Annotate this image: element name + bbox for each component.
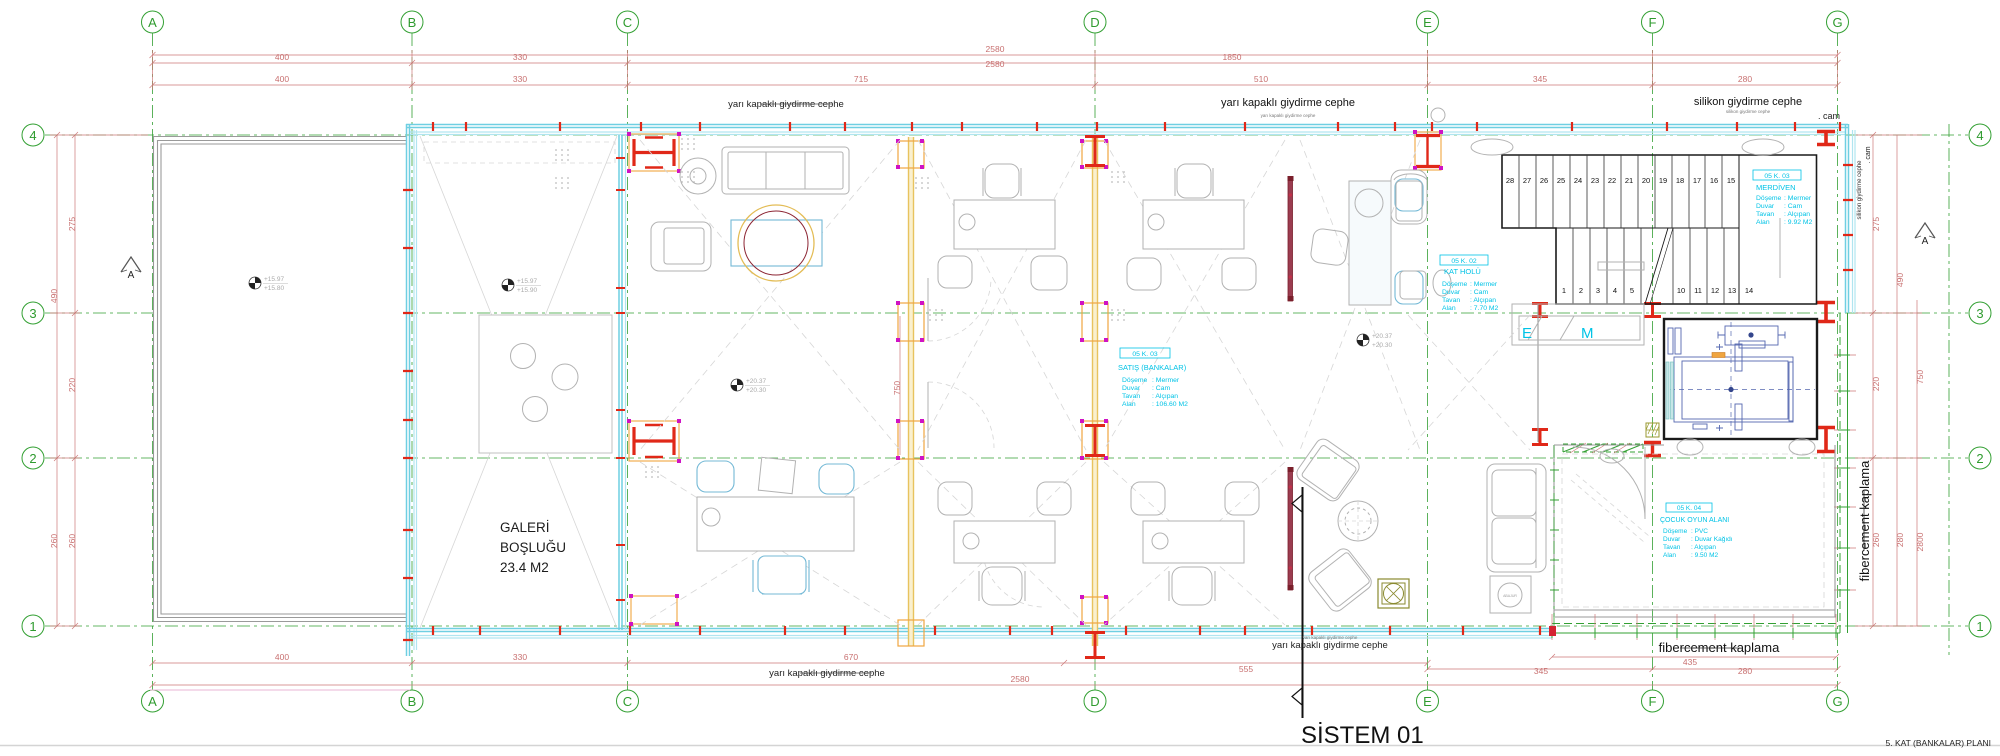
svg-text:A: A [1922, 236, 1929, 247]
svg-text:490: 490 [1895, 273, 1905, 287]
svg-text:: 106.60 M2: : 106.60 M2 [1152, 401, 1188, 408]
svg-text:SATIŞ (BANKALAR): SATIŞ (BANKALAR) [1118, 363, 1187, 372]
svg-text:Duvar: Duvar [1756, 203, 1775, 210]
svg-text:18: 18 [1676, 176, 1684, 185]
svg-text:E: E [1522, 325, 1532, 342]
svg-text:220: 220 [1871, 377, 1881, 391]
svg-text:220: 220 [67, 378, 77, 392]
svg-text:24: 24 [1574, 176, 1582, 185]
svg-text:05 K. 03: 05 K. 03 [1764, 173, 1790, 180]
svg-text:: Duvar Kağıdı: : Duvar Kağıdı [1691, 536, 1733, 543]
svg-text:12: 12 [1711, 286, 1719, 295]
svg-text:: Alçıpan: : Alçıpan [1152, 393, 1178, 400]
svg-text:23: 23 [1591, 176, 1599, 185]
svg-text:: Mermer: : Mermer [1784, 195, 1812, 202]
svg-text:555: 555 [1239, 664, 1253, 674]
svg-text:: Alçıpan: : Alçıpan [1784, 211, 1810, 218]
svg-text:fibercement kaplama: fibercement kaplama [1659, 640, 1780, 655]
svg-text:400: 400 [275, 652, 289, 662]
svg-text:E: E [1423, 694, 1432, 709]
svg-text:fibercement kaplama: fibercement kaplama [1857, 460, 1872, 581]
svg-text:Döşeme: Döşeme [1663, 528, 1688, 535]
svg-text:: Cam: : Cam [1152, 385, 1170, 392]
svg-text:Döşeme: Döşeme [1122, 377, 1148, 384]
svg-text:16: 16 [1710, 176, 1718, 185]
svg-text:490: 490 [49, 289, 59, 303]
svg-text:yarı kapaklı giydirme cephe: yarı kapaklı giydirme cephe [1261, 113, 1316, 118]
svg-text:1: 1 [29, 619, 36, 634]
svg-text:Döşeme: Döşeme [1442, 281, 1468, 288]
svg-text:400: 400 [275, 52, 289, 62]
svg-text:+20.30: +20.30 [1372, 342, 1392, 349]
svg-text:14: 14 [1745, 286, 1753, 295]
svg-text:11: 11 [1694, 286, 1702, 295]
svg-text:: 9.50 M2: : 9.50 M2 [1691, 552, 1718, 559]
svg-text:28: 28 [1506, 176, 1514, 185]
svg-text:+15.97: +15.97 [264, 276, 284, 283]
svg-text:F: F [1649, 694, 1657, 709]
svg-text:yarı kapaklı giydirme cephe: yarı kapaklı giydirme cephe [1272, 640, 1388, 651]
svg-text:400: 400 [275, 74, 289, 84]
svg-text:4: 4 [1613, 286, 1617, 295]
svg-text:Döşeme: Döşeme [1756, 195, 1782, 202]
svg-text:yarı kapaklı giydirme cephe: yarı kapaklı giydirme cephe [728, 99, 844, 110]
svg-text:Tavan: Tavan [1756, 211, 1774, 218]
svg-text:1850: 1850 [1223, 52, 1242, 62]
svg-text:silikon giydirme cephe: silikon giydirme cephe [1857, 160, 1863, 220]
svg-text:+20.37: +20.37 [746, 378, 766, 385]
svg-text:27: 27 [1523, 176, 1531, 185]
svg-text:ABAJUR: ABAJUR [1503, 594, 1517, 598]
svg-text:05 K. 02: 05 K. 02 [1451, 258, 1477, 265]
svg-text:Tavan: Tavan [1122, 393, 1140, 400]
svg-text:G: G [1832, 15, 1842, 30]
svg-text:A: A [148, 15, 157, 30]
svg-text:Alan: Alan [1122, 401, 1136, 408]
svg-text:2: 2 [29, 451, 36, 466]
svg-text:D: D [1090, 15, 1099, 30]
svg-text:330: 330 [513, 652, 527, 662]
svg-text:: 9.92 M2: : 9.92 M2 [1784, 219, 1813, 226]
svg-text:silikon giydirme cephe: silikon giydirme cephe [1694, 96, 1802, 108]
svg-text:+15.80: +15.80 [264, 285, 284, 292]
svg-text:G: G [1832, 694, 1842, 709]
svg-text:435: 435 [1683, 657, 1697, 667]
svg-text:KAT HOLÜ: KAT HOLÜ [1444, 267, 1481, 276]
svg-text:20: 20 [1642, 176, 1650, 185]
svg-text:M: M [1581, 325, 1594, 342]
svg-text:750: 750 [1915, 370, 1925, 384]
svg-text:3: 3 [29, 306, 36, 321]
svg-text:280: 280 [1895, 533, 1905, 547]
svg-text:: PVC: : PVC [1691, 528, 1708, 535]
svg-text:+20.30: +20.30 [746, 387, 766, 394]
svg-text:345: 345 [1534, 666, 1548, 676]
svg-text:Alan: Alan [1663, 552, 1676, 559]
svg-text:25: 25 [1557, 176, 1565, 185]
svg-text:yarı kapaklı giydirme cephe: yarı kapaklı giydirme cephe [1221, 97, 1355, 109]
svg-text:345: 345 [1533, 74, 1547, 84]
svg-text:280: 280 [1738, 74, 1752, 84]
svg-text:2: 2 [1976, 451, 1983, 466]
svg-text:4: 4 [29, 128, 36, 143]
svg-text:Tavan: Tavan [1663, 544, 1681, 551]
svg-text:10: 10 [1677, 286, 1685, 295]
svg-text:. cam: . cam [1865, 146, 1872, 163]
svg-text:26: 26 [1540, 176, 1548, 185]
svg-text:SİSTEM 01: SİSTEM 01 [1301, 722, 1424, 749]
svg-text:13: 13 [1728, 286, 1736, 295]
svg-text:260: 260 [67, 534, 77, 548]
svg-text:Alan: Alan [1756, 219, 1770, 226]
svg-text:750: 750 [892, 381, 902, 395]
svg-text:yarı kapaklı giydirme cephe: yarı kapaklı giydirme cephe [1303, 635, 1358, 640]
svg-text:E: E [1423, 15, 1432, 30]
svg-text:05 K. 04: 05 K. 04 [1677, 505, 1702, 512]
svg-text:2: 2 [1579, 286, 1583, 295]
svg-text:ÇOCUK OYUN ALANI: ÇOCUK OYUN ALANI [1660, 517, 1729, 524]
svg-text:D: D [1090, 694, 1099, 709]
svg-text:4: 4 [1976, 128, 1983, 143]
svg-text:: Alçıpan: : Alçıpan [1470, 297, 1496, 304]
svg-text:3: 3 [1976, 306, 1983, 321]
svg-text:: Alçıpan: : Alçıpan [1691, 544, 1716, 551]
svg-text:2580: 2580 [986, 44, 1005, 54]
svg-text:670: 670 [844, 652, 858, 662]
svg-text:22: 22 [1608, 176, 1616, 185]
svg-text:B: B [408, 694, 417, 709]
svg-text:2580: 2580 [1011, 674, 1030, 684]
svg-text:1: 1 [1976, 619, 1983, 634]
svg-text:A: A [128, 270, 135, 281]
svg-text:05 K. 03: 05 K. 03 [1132, 351, 1158, 358]
svg-text:MERDİVEN: MERDİVEN [1756, 183, 1796, 192]
svg-text:260: 260 [1871, 533, 1881, 547]
svg-text:5. KAT (BANKALAR) PLANI: 5. KAT (BANKALAR) PLANI [1886, 738, 1992, 748]
svg-text:23.4 M2: 23.4 M2 [500, 560, 549, 575]
svg-text:: Mermer: : Mermer [1152, 377, 1180, 384]
svg-text:: Mermer: : Mermer [1470, 281, 1498, 288]
svg-text:19: 19 [1659, 176, 1667, 185]
svg-text:1: 1 [1562, 286, 1566, 295]
svg-text:: Cam: : Cam [1470, 289, 1488, 296]
svg-text:C: C [623, 15, 632, 30]
svg-text:17: 17 [1693, 176, 1701, 185]
svg-text:Duvar: Duvar [1442, 289, 1461, 296]
svg-text:21: 21 [1625, 176, 1633, 185]
svg-text:5: 5 [1630, 286, 1634, 295]
svg-text:: 7.70 M2: : 7.70 M2 [1470, 305, 1499, 312]
svg-text:silikon giydirme cephe: silikon giydirme cephe [1726, 109, 1771, 114]
svg-text:330: 330 [513, 74, 527, 84]
svg-text:Duvar: Duvar [1663, 536, 1681, 543]
svg-text:3: 3 [1596, 286, 1600, 295]
svg-text:260: 260 [49, 534, 59, 548]
svg-text:510: 510 [1254, 74, 1268, 84]
svg-text:GALERİ: GALERİ [500, 520, 550, 535]
svg-text:A: A [148, 694, 157, 709]
svg-text:275: 275 [67, 217, 77, 231]
svg-text:2800: 2800 [1915, 532, 1925, 551]
svg-text:B: B [408, 15, 417, 30]
svg-text:+15.90: +15.90 [517, 287, 537, 294]
svg-text:yarı kapaklı giydirme cephe: yarı kapaklı giydirme cephe [769, 668, 885, 679]
svg-text:: Cam: : Cam [1784, 203, 1802, 210]
svg-text:C: C [623, 694, 632, 709]
svg-text:715: 715 [854, 74, 868, 84]
svg-text:+20.37: +20.37 [1372, 333, 1392, 340]
svg-text:. cam: . cam [1818, 111, 1840, 121]
svg-text:Alan: Alan [1442, 305, 1456, 312]
svg-text:2580: 2580 [986, 59, 1005, 69]
svg-text:275: 275 [1871, 217, 1881, 231]
svg-text:280: 280 [1738, 666, 1752, 676]
svg-text:Duvar: Duvar [1122, 385, 1141, 392]
svg-text:15: 15 [1727, 176, 1735, 185]
svg-text:330: 330 [513, 52, 527, 62]
svg-text:BOŞLUĞU: BOŞLUĞU [500, 540, 566, 555]
svg-text:+15.97: +15.97 [517, 278, 537, 285]
svg-text:F: F [1649, 15, 1657, 30]
svg-text:Tavan: Tavan [1442, 297, 1460, 304]
